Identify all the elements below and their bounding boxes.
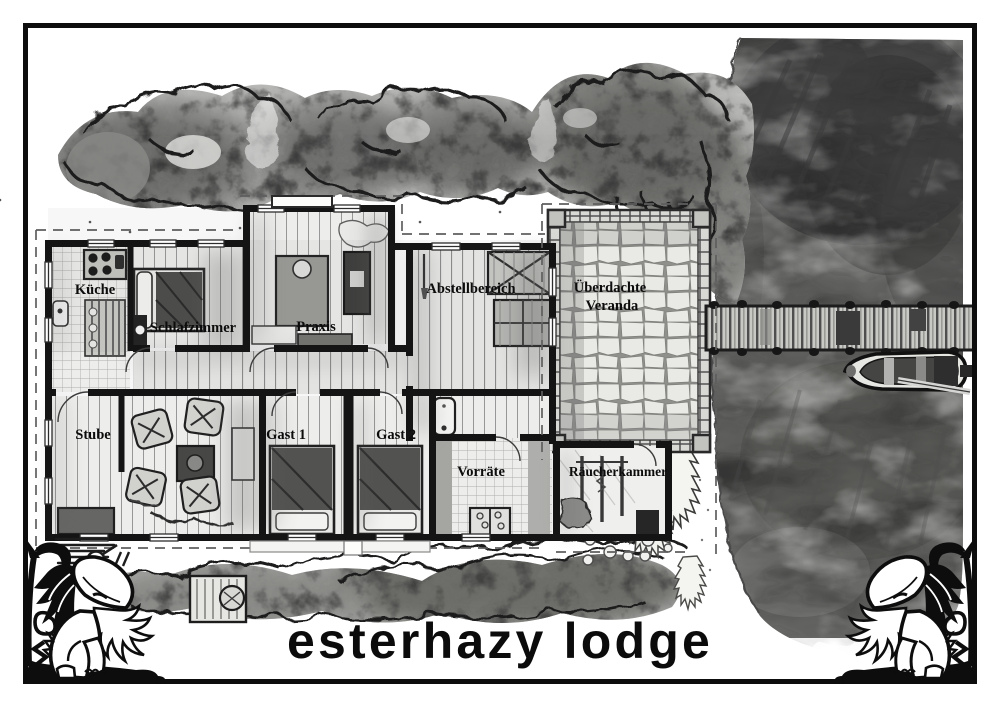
svg-text:Küche: Küche	[75, 282, 116, 298]
svg-text:Vorräte: Vorräte	[457, 464, 505, 480]
svg-text:esterhazy lodge: esterhazy lodge	[287, 613, 713, 669]
svg-text:Abstellbereich: Abstellbereich	[426, 281, 515, 297]
svg-text:Schlafzimmer: Schlafzimmer	[150, 320, 237, 336]
svg-text:Räucherkammer: Räucherkammer	[569, 464, 667, 479]
svg-text:Stube: Stube	[75, 427, 111, 443]
svg-text:Veranda: Veranda	[586, 298, 639, 314]
svg-text:Überdachte: Überdachte	[574, 279, 647, 296]
svg-text:Praxis: Praxis	[296, 319, 336, 335]
svg-text:Gast 1: Gast 1	[266, 427, 306, 443]
svg-text:Gast 2: Gast 2	[376, 427, 416, 443]
